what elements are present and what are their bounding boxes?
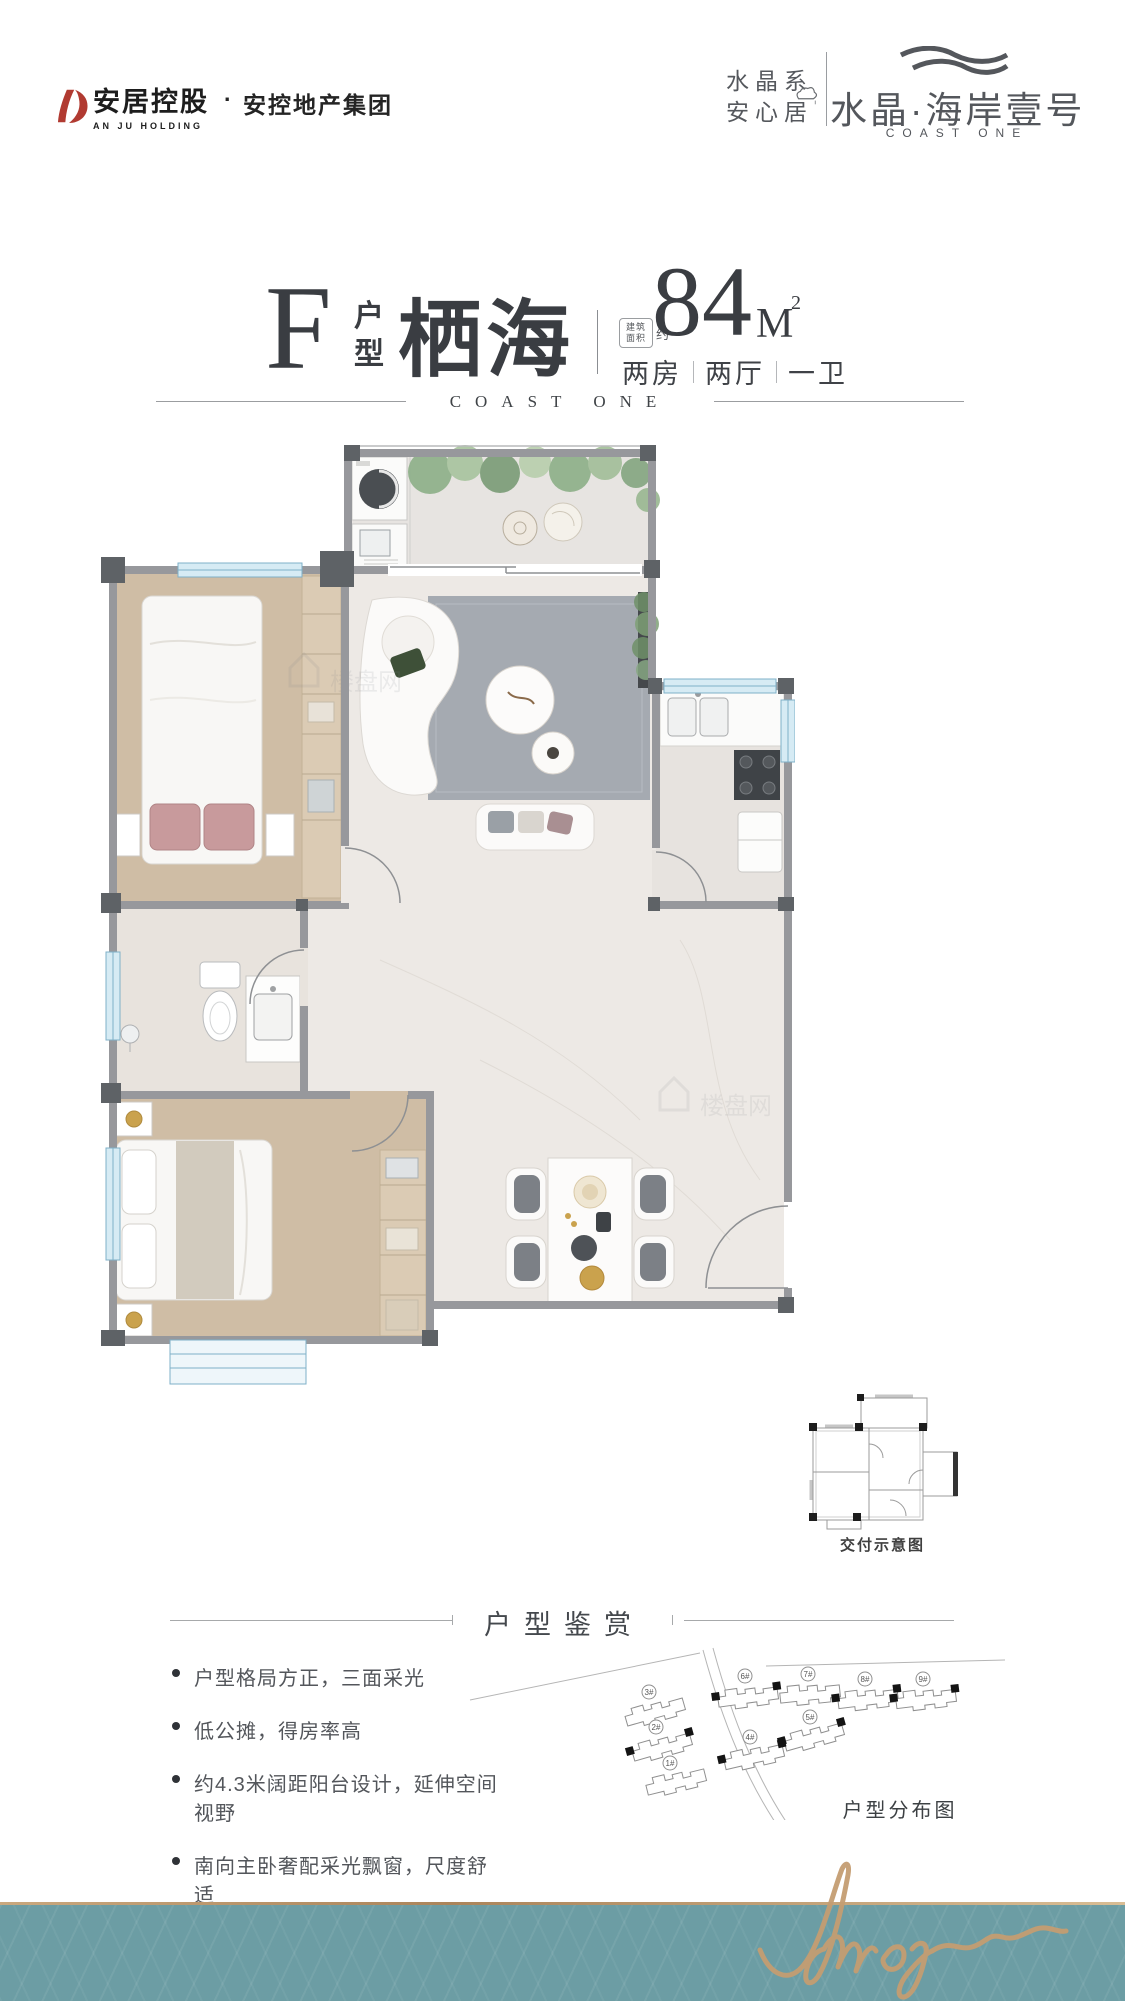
svg-text:7#: 7# <box>804 1670 813 1679</box>
delivery-diagram <box>795 1360 970 1530</box>
diagram-columns <box>809 1394 958 1521</box>
notes-rule-left <box>170 1620 452 1621</box>
bullet-icon <box>172 1669 180 1677</box>
bay-window <box>170 1340 306 1384</box>
siteplan-caption: 户型分布图 <box>810 1794 990 1823</box>
hall-floor <box>304 909 349 1091</box>
kitchen-counter <box>660 690 784 746</box>
notes-rule-right <box>684 1620 954 1621</box>
area-superscript: 2 <box>791 292 801 315</box>
list-item: 低公摊，得房率高 <box>172 1715 502 1744</box>
stove-icon <box>734 750 780 800</box>
list-item: 约4.3米阔距阳台设计，延伸空间视野 <box>172 1768 502 1826</box>
feature-list: 户型格局方正，三面采光 低公摊，得房率高 约4.3米阔距阳台设计，延伸空间视野 … <box>172 1662 502 1932</box>
list-item: 户型格局方正，三面采光 <box>172 1662 502 1691</box>
layout-bar <box>693 361 694 383</box>
balcony-table-icon <box>503 511 537 545</box>
svg-text:6#: 6# <box>741 1672 750 1681</box>
area-unit: M <box>756 300 793 348</box>
bedroom1-bed <box>142 596 262 864</box>
svg-text:1#: 1# <box>666 1759 675 1768</box>
delivery-caption: 交付示意图 <box>795 1534 970 1555</box>
logo-text-block: 安居控股 AN JU HOLDING <box>93 80 209 131</box>
title-en: COAST ONE <box>406 392 714 412</box>
dining-table-icon <box>548 1158 632 1302</box>
bedroom2-bed <box>116 1140 272 1300</box>
cloud-seal-icon <box>793 84 819 111</box>
bedroom1-nightstand-left <box>116 814 140 856</box>
logo-group-name: 安控地产集团 <box>243 86 393 120</box>
svg-text:楼盘网: 楼盘网 <box>700 1093 772 1120</box>
layout-baths: 一卫 <box>788 352 848 391</box>
brand-divider <box>826 52 827 126</box>
wave-icon <box>897 46 1012 81</box>
fridge-icon <box>738 812 782 872</box>
building-2: 2# <box>624 1720 697 1767</box>
bullet-icon <box>172 1775 180 1783</box>
area-tag-line2: 面积 <box>626 333 646 344</box>
building-1: 1# <box>644 1756 707 1799</box>
layout-bar <box>776 361 777 383</box>
svg-text:4#: 4# <box>746 1733 755 1742</box>
unit-label-bottom: 型 <box>354 338 384 373</box>
poster-canvas: 安居控股 AN JU HOLDING · 安控地产集团 水晶系 安心居 水晶·海… <box>0 0 1125 2001</box>
svg-text:9#: 9# <box>919 1675 928 1684</box>
notes-heading: 户型鉴赏 <box>458 1603 670 1642</box>
anju-logo-icon <box>55 86 89 126</box>
title-divider <box>597 310 598 374</box>
loveseat-icon <box>476 804 594 850</box>
logo-name-cn: 安居控股 <box>93 80 209 119</box>
balcony-slider <box>388 564 642 576</box>
building-5: 5# <box>776 1710 849 1757</box>
svg-text:3#: 3# <box>645 1688 654 1697</box>
balcony-chair-icon <box>544 503 582 541</box>
list-item: 南向主卧奢配采光飘窗，尺度舒适 <box>172 1850 502 1908</box>
bedroom1-nightstand-right <box>266 814 294 856</box>
layout-tags: 两房 两厅 一卫 <box>622 352 848 391</box>
title-rule-left <box>156 401 406 402</box>
logo-name-en: AN JU HOLDING <box>93 121 209 131</box>
notes-tick-left <box>452 1615 453 1625</box>
logo-separator: · <box>224 86 234 113</box>
building-9: 9# <box>889 1672 961 1713</box>
vanity-icon <box>246 976 300 1062</box>
bedroom2-closet <box>380 1150 426 1336</box>
bedroom1-closet <box>302 576 341 898</box>
logo-dot: · <box>224 86 234 112</box>
svg-text:楼盘网: 楼盘网 <box>330 669 402 696</box>
title-rule-right <box>714 401 964 402</box>
building-4: 4# <box>716 1730 789 1775</box>
area-tag-line1: 建筑 <box>626 322 646 333</box>
lamp-icon <box>126 1312 142 1328</box>
toilet-icon <box>200 962 240 1041</box>
washing-machine-icon <box>352 457 407 520</box>
notes-tick-right <box>672 1615 673 1625</box>
layout-halls: 两厅 <box>705 352 765 391</box>
brand-project-en: COAST ONE <box>852 126 1062 140</box>
anju-logo-mark <box>55 86 89 126</box>
balcony-sink-icon <box>352 524 407 569</box>
building-6: 6# <box>711 1669 783 1712</box>
unit-letter: F <box>265 268 332 388</box>
area-value: 84 <box>652 252 752 352</box>
lamp-icon <box>126 1111 142 1127</box>
svg-text:8#: 8# <box>861 1675 870 1684</box>
unit-name: 栖海 <box>398 300 574 384</box>
unit-label-top: 户 <box>354 300 384 335</box>
bullet-icon <box>172 1857 180 1865</box>
area-tag-box: 建筑 面积 <box>619 318 653 348</box>
bullet-icon <box>172 1722 180 1730</box>
building-8: 8# <box>831 1672 903 1713</box>
svg-text:5#: 5# <box>806 1713 815 1722</box>
layout-rooms: 两房 <box>622 352 682 391</box>
signature-icon <box>740 1855 1090 2001</box>
building-7: 7# <box>779 1667 841 1707</box>
svg-text:2#: 2# <box>652 1723 661 1732</box>
floorplan-drawing: 楼盘网 楼盘网 <box>100 440 795 1400</box>
